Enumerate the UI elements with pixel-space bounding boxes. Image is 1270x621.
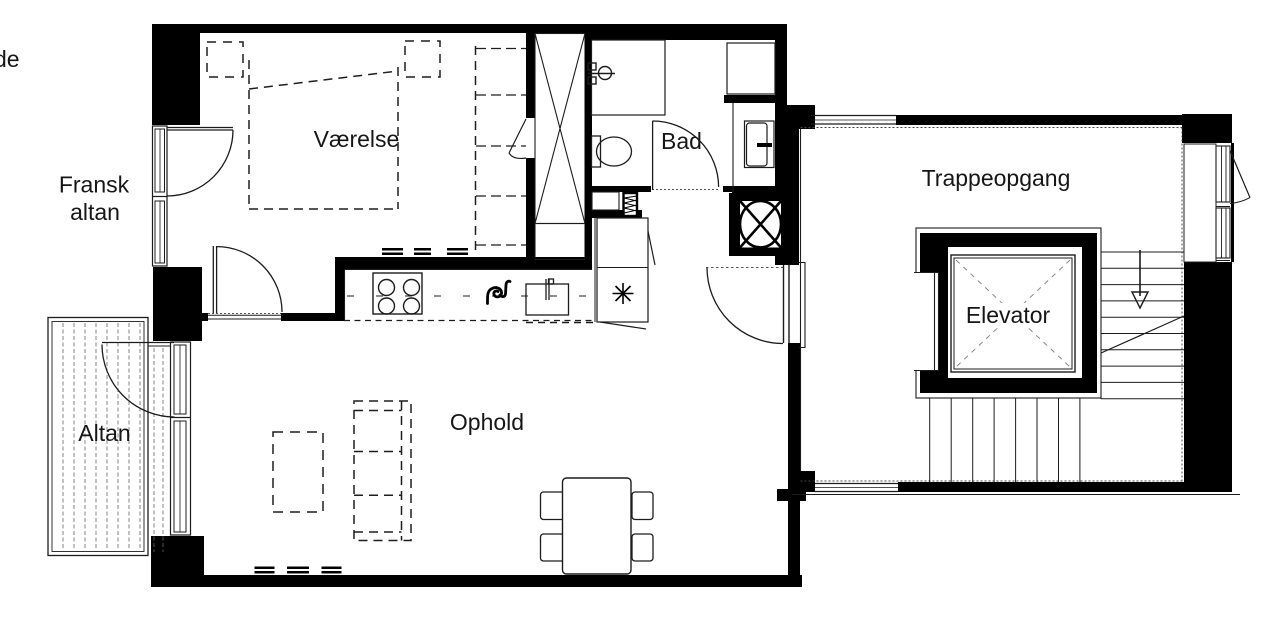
svg-text:Trappeopgang: Trappeopgang <box>922 165 1071 191</box>
svg-text:Fransk: Fransk <box>59 172 130 198</box>
svg-text:Elevator: Elevator <box>966 302 1051 328</box>
svg-text:Altan: Altan <box>78 420 130 446</box>
svg-text:altan: altan <box>70 199 120 225</box>
svg-text:Ophold: Ophold <box>450 409 524 435</box>
svg-text:Værelse: Værelse <box>314 126 400 152</box>
svg-text:Bad: Bad <box>661 128 702 154</box>
svg-text:de: de <box>0 46 20 72</box>
